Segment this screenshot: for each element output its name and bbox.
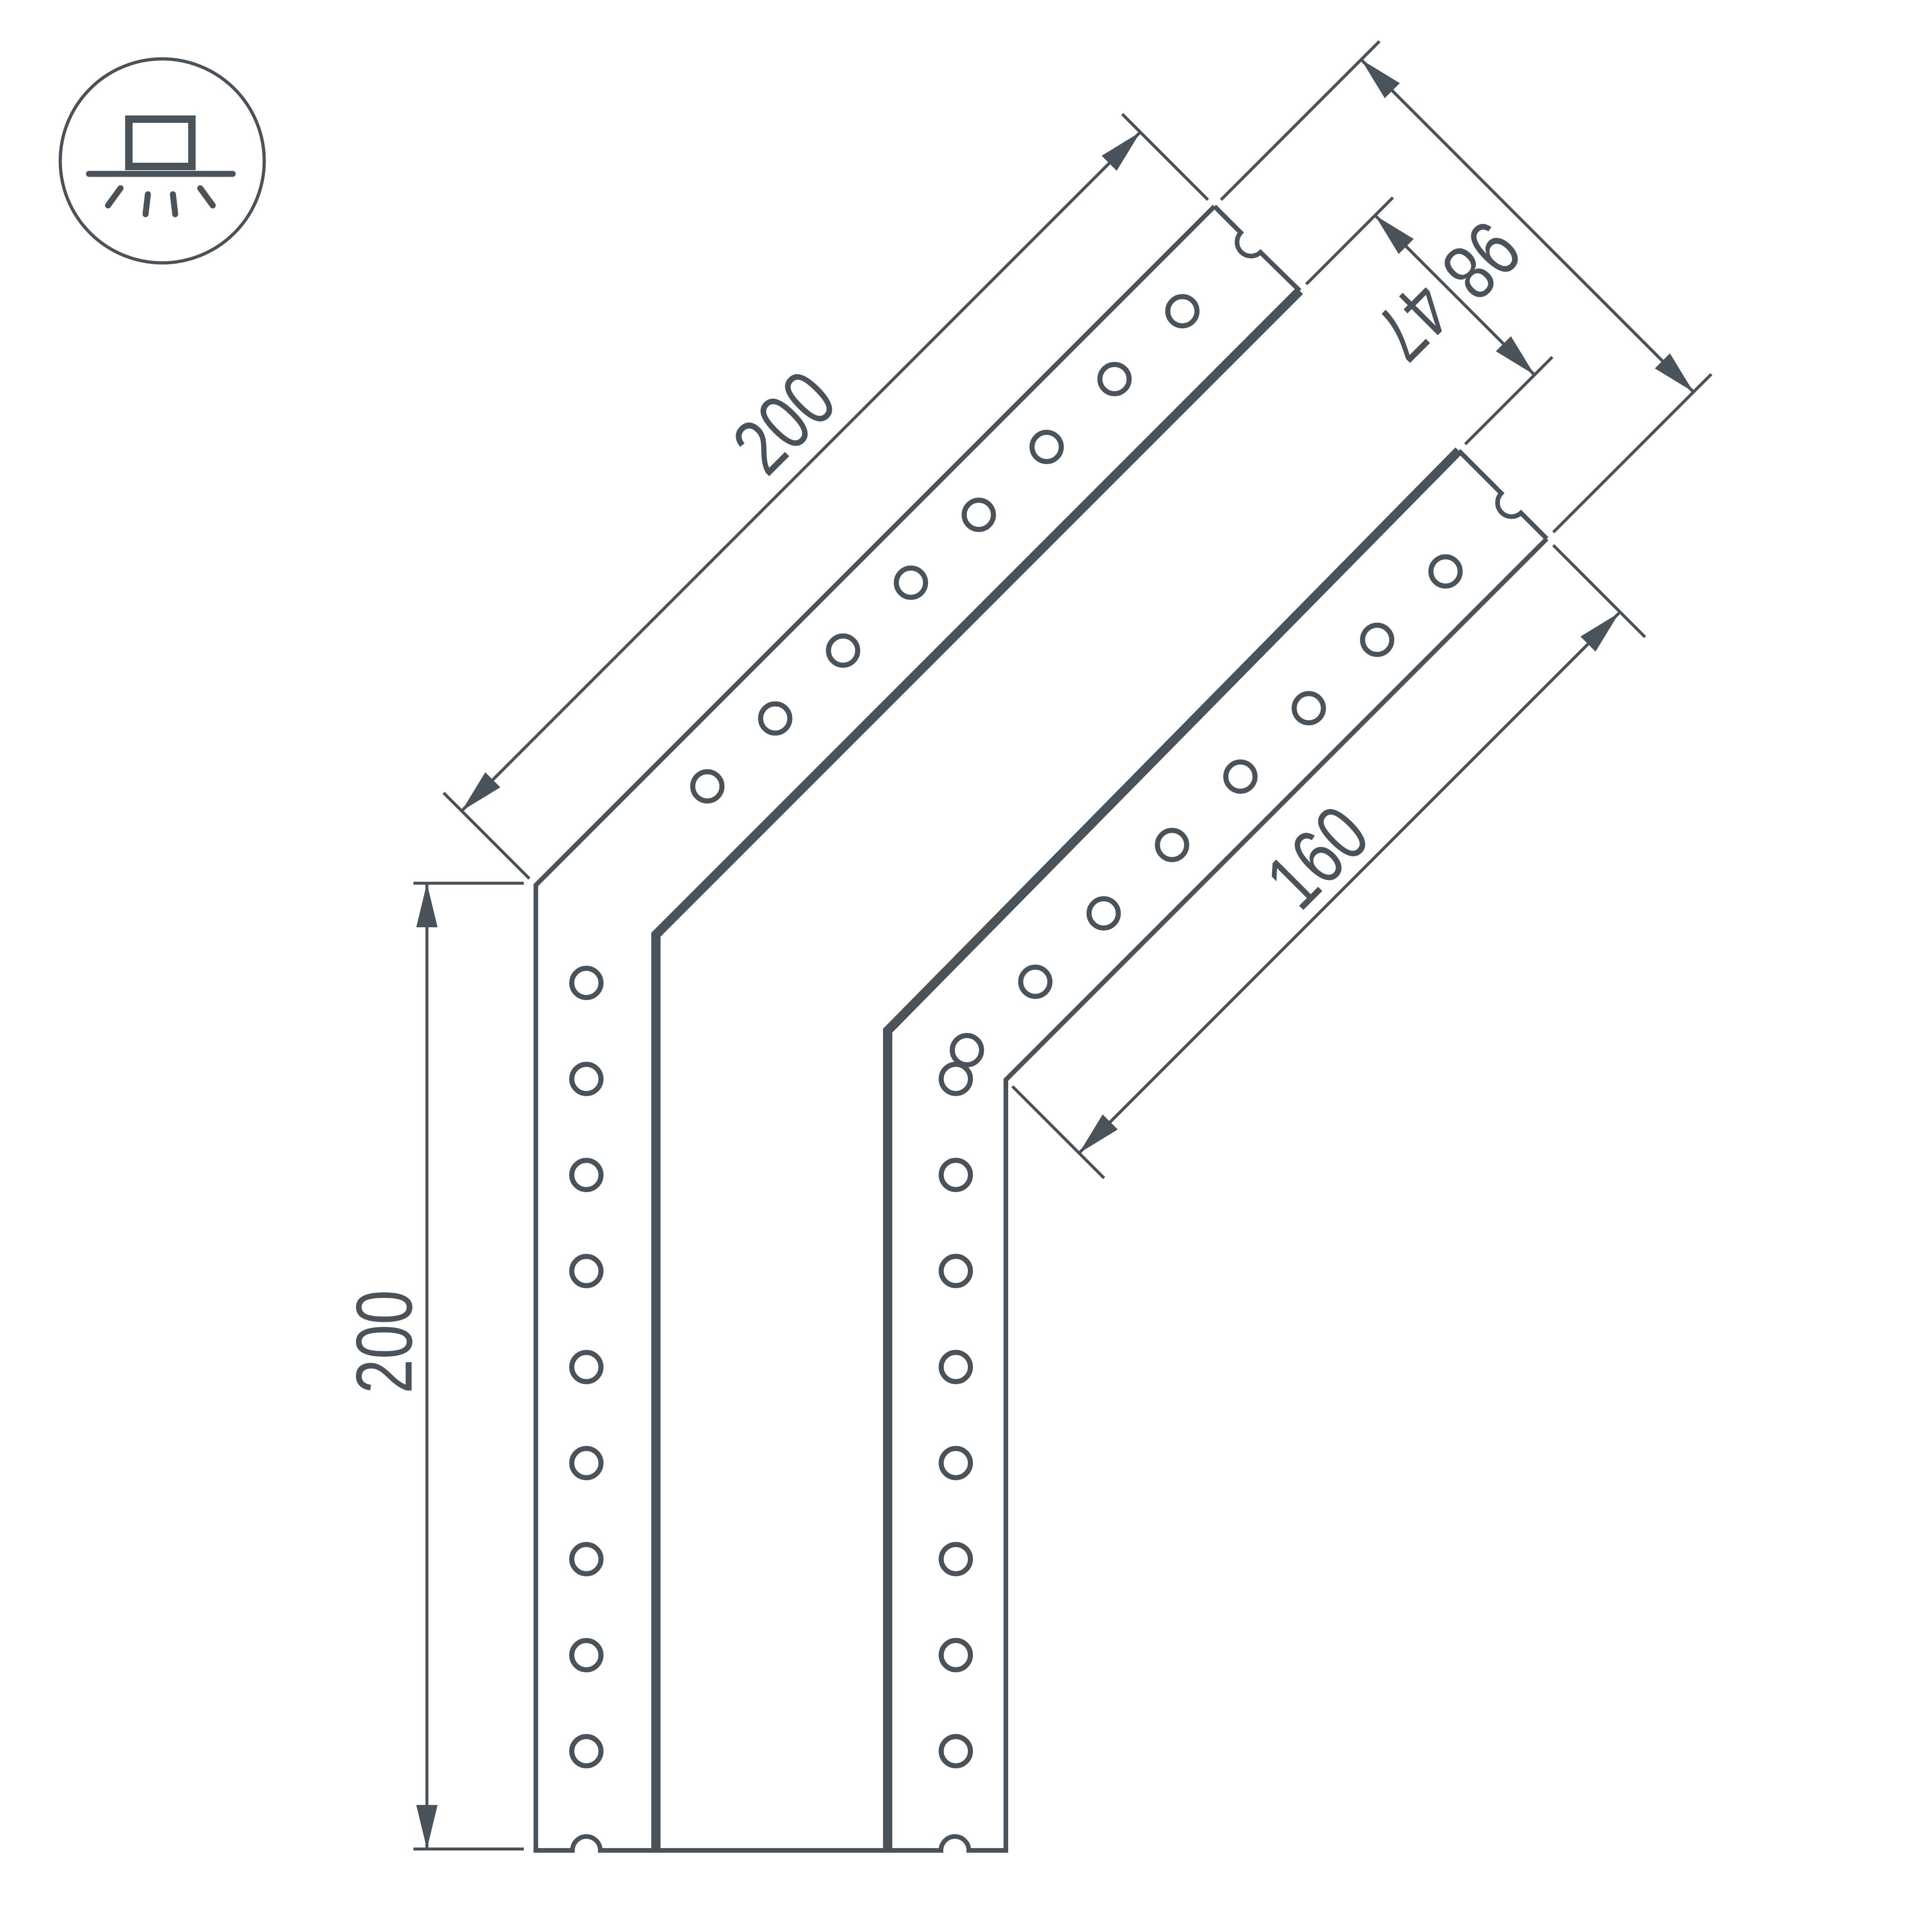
svg-text:160: 160 (1249, 789, 1385, 925)
svg-text:200: 200 (339, 1290, 429, 1394)
svg-text:200: 200 (716, 354, 852, 491)
svg-text:47: 47 (1357, 266, 1469, 378)
svg-text:98: 98 (1426, 205, 1538, 317)
